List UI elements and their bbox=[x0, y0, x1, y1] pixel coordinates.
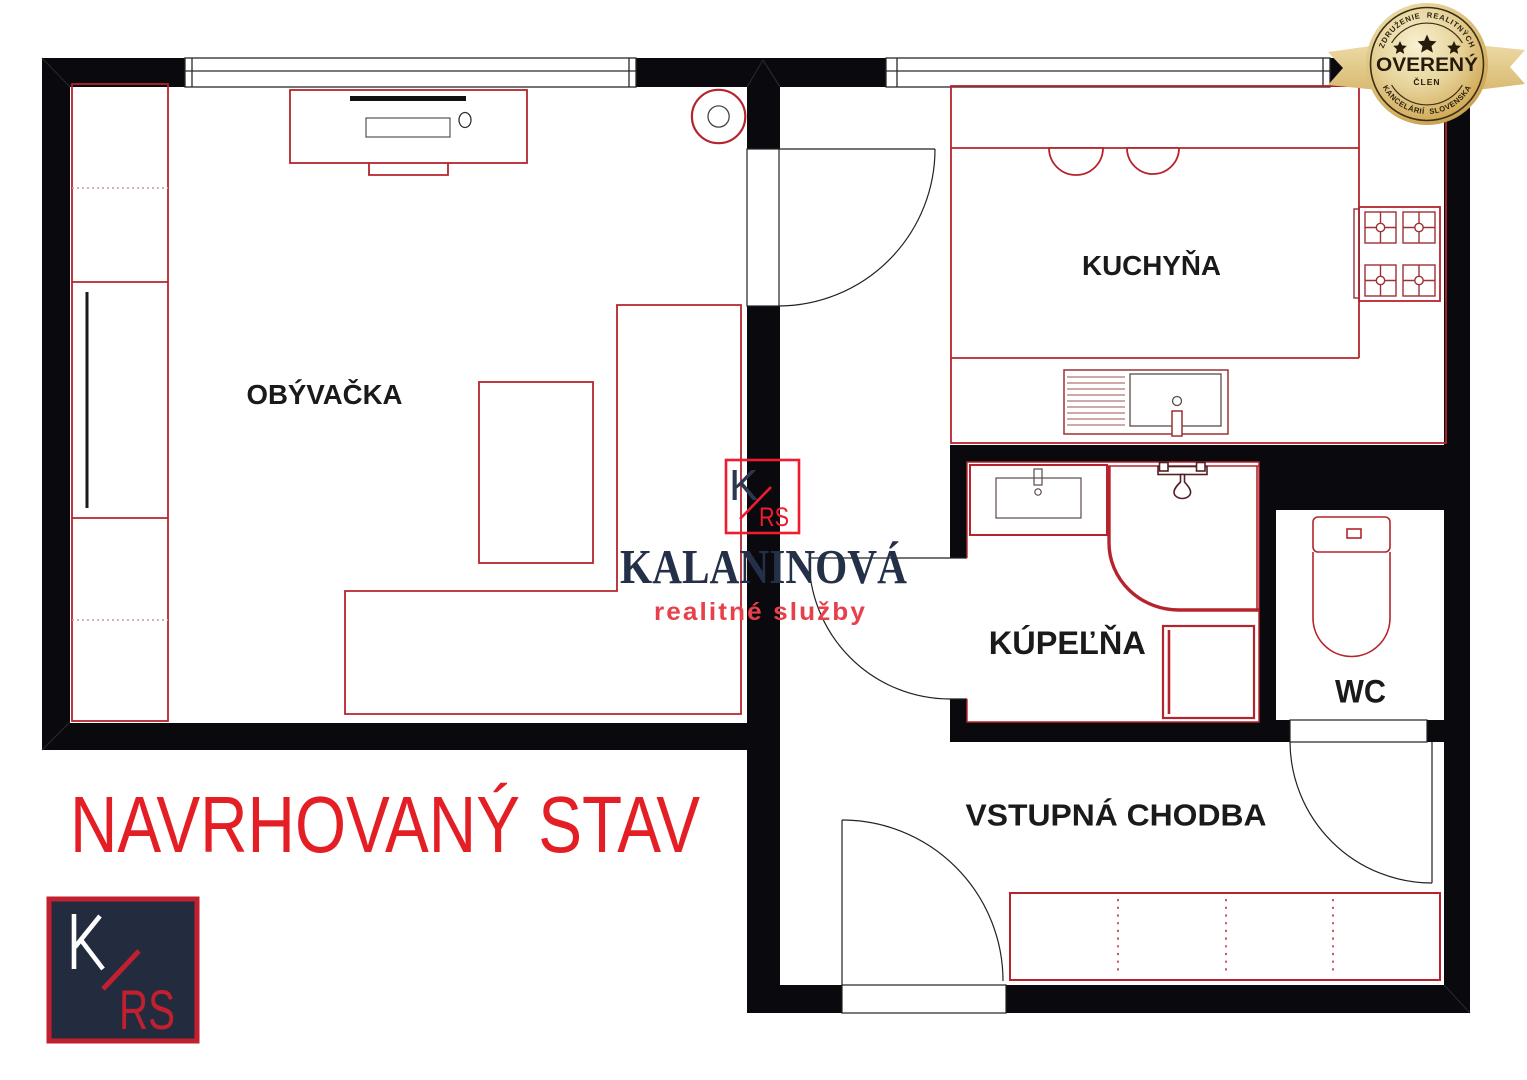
svg-text:KUCHYŇA: KUCHYŇA bbox=[1082, 250, 1221, 281]
svg-text:K: K bbox=[729, 461, 758, 510]
svg-text:OBÝVAČKA: OBÝVAČKA bbox=[247, 378, 403, 410]
svg-text:NAVRHOVANÝ STAV: NAVRHOVANÝ STAV bbox=[70, 780, 701, 869]
svg-text:VSTUPNÁ CHODBA: VSTUPNÁ CHODBA bbox=[966, 798, 1267, 833]
svg-text:ČLEN: ČLEN bbox=[1413, 76, 1440, 87]
svg-text:KÚPEĽŇA: KÚPEĽŇA bbox=[989, 624, 1146, 661]
svg-text:RS: RS bbox=[119, 978, 175, 1041]
svg-text:RS: RS bbox=[759, 502, 789, 532]
svg-text:WC: WC bbox=[1335, 674, 1386, 710]
svg-text:realitné služby: realitné služby bbox=[654, 598, 867, 626]
svg-text:KALANINOVÁ: KALANINOVÁ bbox=[620, 539, 908, 594]
svg-text:OVERENÝ: OVERENÝ bbox=[1376, 54, 1478, 76]
